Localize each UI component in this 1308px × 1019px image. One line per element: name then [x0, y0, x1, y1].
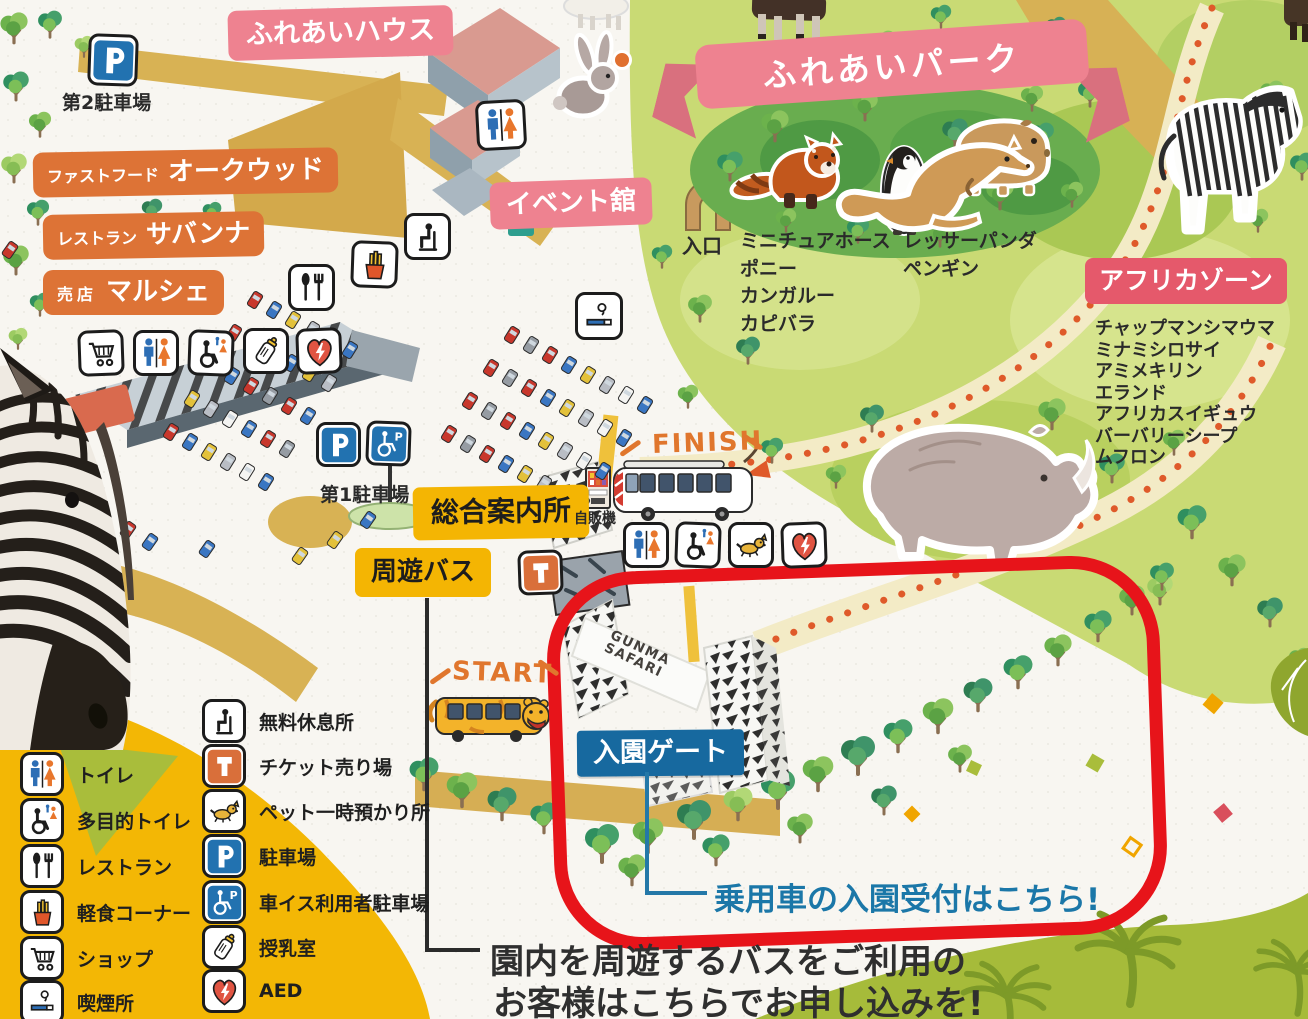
parking-icon: [202, 834, 246, 878]
legend-label: 授乳室: [259, 934, 316, 961]
callout-line-vertical: [645, 772, 649, 894]
animal-name: ペンギン: [903, 256, 1037, 284]
nursing-room-icon: [243, 328, 289, 374]
legend-row-nursing: 授乳室: [202, 925, 316, 969]
shop-label: 売店 マルシェ: [43, 270, 224, 315]
fureai-animal-list-col2: レッサーパンダ ペンギン: [903, 228, 1037, 283]
info-center-text: 総合案内所: [431, 496, 572, 529]
toilet-icon: [475, 99, 528, 152]
start-bus-illustration: [430, 698, 549, 742]
entry-gate-sign: 入園ゲート: [577, 729, 744, 776]
accessible-toilet-icon: [674, 521, 722, 569]
aed-icon: [295, 327, 343, 375]
parking2-label: 第2駐車場: [62, 88, 151, 115]
africa-animal-list: チャップマンシマウマ ミナミシロサイ アミメキリン エランド アフリカスイギュウ…: [1095, 318, 1275, 469]
animal-name: エランド: [1095, 383, 1275, 405]
legend-row-pet: ペット一時預かり所: [202, 789, 430, 833]
legend-row-toilet: トイレ: [20, 752, 134, 796]
shop-icon: [20, 936, 64, 980]
animal-name: カンガルー: [740, 283, 891, 311]
park-map: 第2駐車場 ふれあいハウス ファストフード オークウッド レストラン サバンナ …: [0, 0, 1308, 1019]
legend-row-accessible-parking: P 車イス利用者駐車場: [202, 880, 429, 924]
nursing-room-icon: [202, 925, 246, 969]
legend-row-shop: ショップ: [20, 936, 153, 980]
bus-note-line2: お客様はこちらでお申し込みを!: [493, 976, 984, 1019]
svg-text:P: P: [394, 430, 403, 443]
fastfood-name: オークウッド: [168, 156, 324, 187]
legend-row-accessible-toilet: 多目的トイレ: [20, 798, 191, 842]
legend-label: 駐車場: [259, 843, 316, 870]
animal-name: ポニー: [740, 256, 891, 284]
toilet-icon: [623, 522, 669, 568]
toilet-icon: [133, 330, 179, 376]
legend-label: ショップ: [77, 945, 153, 972]
shop-icon: [77, 329, 125, 377]
legend-label: ペット一時預かり所: [259, 798, 430, 825]
legend-label: チケット売り場: [259, 753, 392, 780]
africa-zone-label: アフリカゾーン: [1085, 258, 1287, 304]
pet-care-icon: [202, 789, 246, 833]
note-line-horizontal: [425, 948, 480, 952]
accessible-toilet-icon: [20, 798, 64, 842]
restaurant-icon: [20, 844, 64, 888]
restaurant-label: レストラン サバンナ: [43, 211, 265, 259]
callout-line-horizontal: [645, 891, 707, 895]
finish-marker: FINISH: [652, 426, 764, 460]
legend-label: 車イス利用者駐車場: [259, 889, 429, 916]
africa-zone-text: アフリカゾーン: [1099, 267, 1273, 295]
legend-row-restaurant: レストラン: [20, 844, 172, 888]
snack-corner-icon: [350, 240, 399, 289]
smoking-area-icon: [20, 980, 64, 1019]
snack-corner-icon: [20, 890, 64, 934]
legend-label: 多目的トイレ: [77, 807, 191, 834]
fureai-animal-list-col1: ミニチュアホース ポニー カンガルー カピバラ: [740, 228, 891, 338]
fureai-park-label: ふれあいパーク: [694, 18, 1090, 109]
accessible-parking-icon: P: [365, 420, 412, 467]
fureai-park-banner: ふれあいパーク: [652, 24, 1132, 164]
legend-row-ticket: チケット売り場: [202, 744, 392, 788]
legend-row-snack: 軽食コーナー: [20, 890, 191, 934]
info-center-label: 総合案内所: [413, 484, 590, 540]
shop-name: マルシェ: [106, 278, 210, 307]
confetti: [904, 693, 1233, 856]
pet-care-icon: [728, 522, 774, 568]
accessible-toilet-icon: [187, 329, 235, 377]
legend-label: 喫煙所: [77, 989, 134, 1016]
vending-machine-label: 自販機: [574, 508, 616, 528]
animal-name: チャップマンシマウマ: [1095, 318, 1275, 340]
event-hall-text: イベント舘: [506, 187, 637, 220]
ticket-office-icon: [517, 549, 564, 596]
animal-name: ムフロン: [1095, 447, 1275, 469]
svg-text:P: P: [229, 888, 237, 901]
fureai-house-label: ふれあいハウス: [227, 5, 453, 61]
animal-name: アミメキリン: [1095, 361, 1275, 383]
entrance-label: 入口: [682, 230, 722, 259]
legend-label: レストラン: [77, 853, 172, 880]
accessible-parking-icon: P: [202, 880, 246, 924]
rest-area-icon: [404, 213, 451, 260]
legend-row-smoking: 喫煙所: [20, 980, 134, 1019]
animal-name: アフリカスイギュウ: [1095, 404, 1275, 426]
parking2-icon: [87, 33, 139, 87]
rest-area-icon: [202, 699, 246, 743]
animal-name: ミニチュアホース: [740, 228, 891, 256]
entry-gate-text: 入園ゲート: [593, 737, 728, 768]
smoking-area-icon: [575, 292, 623, 340]
legend-row-aed: AED: [202, 969, 302, 1013]
tour-bus-label: 周遊バス: [355, 548, 491, 597]
animal-name: ミナミシロサイ: [1095, 340, 1275, 362]
legend-label: AED: [259, 980, 302, 1002]
legend-row-rest-area: 無料休息所: [202, 699, 354, 743]
legend-row-parking: 駐車場: [202, 834, 316, 878]
rabbit-illustration: [553, 31, 631, 116]
animal-name: レッサーパンダ: [903, 228, 1037, 256]
restaurant-type: レストラン: [57, 229, 137, 248]
toilet-icon: [20, 752, 64, 796]
animal-name: バーバリーシープ: [1095, 426, 1275, 448]
car-reception-callout: 乗用車の入園受付はこちら!: [714, 874, 1100, 919]
legend-label: トイレ: [77, 761, 134, 788]
parking1-icon: [316, 422, 361, 467]
legend-label: 軽食コーナー: [77, 899, 191, 926]
fureai-house-text: ふれあいハウス: [246, 16, 436, 51]
fastfood-type: ファストフード: [47, 166, 159, 186]
restaurant-name: サバンナ: [146, 219, 251, 249]
shop-type: 売店: [57, 286, 97, 304]
restaurant-icon: [288, 264, 335, 311]
tour-bus-text: 周遊バス: [371, 558, 475, 587]
fureai-park-text: ふれあいパーク: [761, 31, 1023, 97]
animal-name: カピバラ: [740, 311, 891, 339]
legend-label: 無料休息所: [259, 708, 354, 735]
parking1-label: 第1駐車場: [320, 480, 409, 507]
event-hall-label: イベント舘: [489, 177, 653, 229]
ticket-office-icon: [202, 744, 246, 788]
aed-icon: [780, 521, 828, 569]
aed-icon: [202, 969, 246, 1013]
fastfood-label: ファストフード オークウッド: [33, 147, 339, 197]
